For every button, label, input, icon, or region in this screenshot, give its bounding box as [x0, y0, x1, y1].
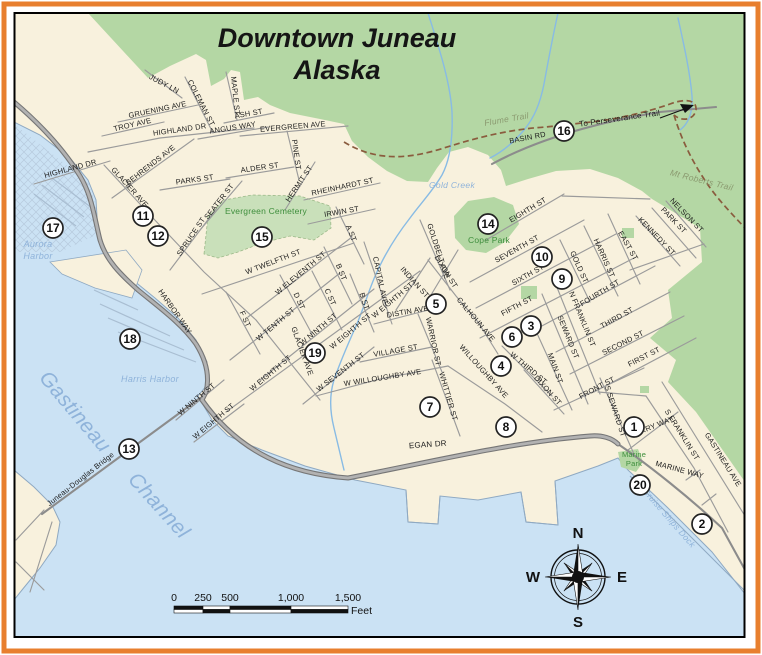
poi-marker-number: 1 [631, 420, 638, 434]
park-label-park: Park [626, 459, 642, 468]
scale-bar-cell [291, 606, 348, 610]
poi-marker-6[interactable]: 6 [502, 327, 522, 347]
scale-bar-cell [203, 610, 230, 614]
poi-marker-number: 18 [123, 332, 137, 346]
scale-bar-cell [174, 610, 203, 614]
poi-marker-8[interactable]: 8 [496, 417, 516, 437]
poi-marker-18[interactable]: 18 [120, 329, 140, 349]
poi-marker-1[interactable]: 1 [624, 417, 644, 437]
poi-marker-15[interactable]: 15 [252, 227, 272, 247]
poi-marker-number: 11 [137, 209, 150, 223]
poi-marker-2[interactable]: 2 [692, 514, 712, 534]
poi-marker-4[interactable]: 4 [491, 356, 511, 376]
poi-marker-12[interactable]: 12 [148, 226, 168, 246]
compass-label-s: S [573, 614, 583, 631]
water-label-aurora: Aurora [23, 239, 53, 249]
poi-marker-number: 12 [151, 229, 165, 243]
scale-bar-tick-label: 250 [194, 592, 212, 604]
map-page: JUDY LNCOLEMAN STMAPLE STASH STGRUENING … [0, 0, 762, 655]
poi-marker-number: 17 [46, 221, 60, 235]
poi-marker-19[interactable]: 19 [305, 343, 325, 363]
scale-bar-tick-label: 1,000 [278, 592, 304, 604]
map-content: JUDY LNCOLEMAN STMAPLE STASH STGRUENING … [14, 13, 745, 637]
poi-marker-number: 13 [122, 442, 136, 456]
scale-bar-cell [174, 606, 203, 610]
poi-marker-number: 9 [559, 272, 566, 286]
small-park-3 [640, 386, 649, 393]
poi-marker-number: 14 [481, 217, 495, 231]
compass-label-e: E [617, 569, 627, 586]
poi-marker-number: 20 [633, 478, 647, 492]
scale-bar-tick-label: 500 [221, 592, 239, 604]
map-title-line2: Alaska [292, 55, 380, 85]
poi-marker-number: 4 [498, 359, 505, 373]
water-label-harris-harbor: Harris Harbor [121, 374, 180, 384]
poi-marker-5[interactable]: 5 [426, 294, 446, 314]
poi-marker-number: 5 [433, 297, 440, 311]
poi-marker-17[interactable]: 17 [43, 218, 63, 238]
scale-bar-cell [230, 610, 291, 614]
water-label-gold-creek: Gold Creek [429, 180, 475, 190]
poi-marker-number: 16 [557, 124, 571, 138]
poi-marker-number: 3 [528, 319, 535, 333]
compass-label-w: W [526, 569, 541, 586]
poi-marker-10[interactable]: 10 [532, 247, 552, 267]
poi-marker-13[interactable]: 13 [119, 439, 139, 459]
poi-marker-14[interactable]: 14 [478, 214, 498, 234]
scale-bar-cell [230, 606, 291, 610]
scale-bar-tick-label: 0 [171, 592, 177, 604]
poi-marker-3[interactable]: 3 [521, 316, 541, 336]
scale-bar-unit: Feet [351, 605, 372, 617]
poi-marker-number: 8 [503, 420, 510, 434]
park-label-cope-park: Cope Park [468, 235, 511, 245]
map-title-line1: Downtown Juneau [218, 23, 457, 53]
poi-marker-9[interactable]: 9 [552, 269, 572, 289]
poi-marker-7[interactable]: 7 [420, 397, 440, 417]
compass-label-n: N [573, 525, 584, 542]
poi-marker-number: 2 [699, 517, 706, 531]
poi-marker-20[interactable]: 20 [630, 475, 650, 495]
compass-hub [572, 571, 584, 583]
poi-marker-number: 19 [308, 346, 322, 360]
scale-bar-tick-label: 1,500 [335, 592, 361, 604]
park-label-marine: Marine [622, 450, 646, 459]
poi-marker-16[interactable]: 16 [554, 121, 574, 141]
scale-bar-cell [203, 606, 230, 610]
water-label-harbor: Harbor [23, 251, 53, 261]
poi-marker-number: 7 [427, 400, 434, 414]
downtown-juneau-map-canvas[interactable]: JUDY LNCOLEMAN STMAPLE STASH STGRUENING … [0, 0, 762, 655]
poi-marker-11[interactable]: 11 [133, 206, 153, 226]
park-label-evergreen-cemetery: Evergreen Cemetery [225, 206, 308, 216]
poi-marker-number: 15 [255, 230, 269, 244]
scale-bar-cell [291, 610, 348, 614]
poi-marker-number: 10 [535, 250, 549, 264]
poi-marker-number: 6 [509, 330, 516, 344]
